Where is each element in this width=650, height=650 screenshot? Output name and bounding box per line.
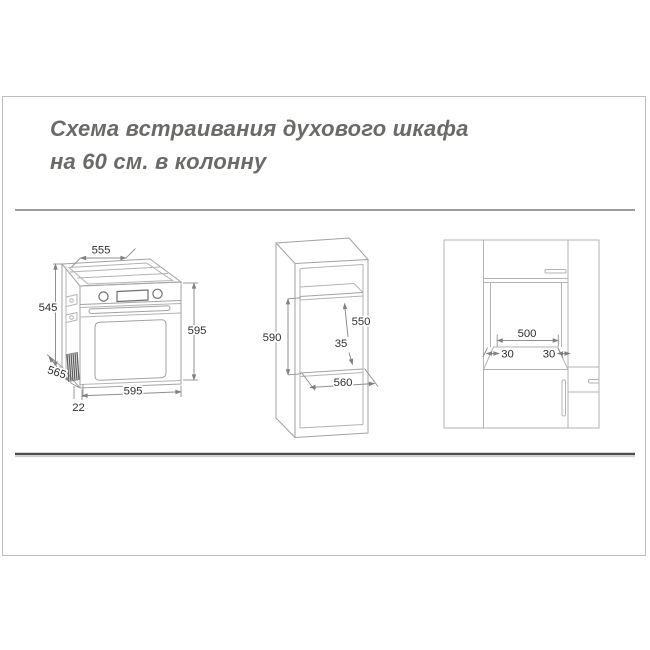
installation-diagram: 555 545 595 595 22 565 bbox=[0, 0, 650, 650]
oven-display bbox=[117, 290, 148, 302]
dim-oven-top-width: 555 bbox=[92, 245, 111, 257]
dim-oven-front-width: 595 bbox=[124, 386, 143, 398]
dim-margin-right: 30 bbox=[543, 349, 556, 361]
oven-top-face bbox=[62, 259, 181, 286]
facade-front-view: 500 30 30 bbox=[444, 240, 599, 428]
dim-niche-height: 590 bbox=[263, 332, 282, 344]
oven-isometric-view: 555 545 595 595 22 565 bbox=[39, 245, 207, 415]
dim-rear-gap: 35 bbox=[335, 338, 348, 350]
dim-oven-depth: 565 bbox=[46, 364, 68, 381]
lower-door-handle bbox=[562, 380, 566, 416]
column-shelf bbox=[300, 293, 363, 297]
dim-margin-left: 30 bbox=[501, 349, 514, 361]
drawer-handle bbox=[589, 380, 600, 384]
column-niche-bottom bbox=[300, 369, 363, 373]
oven-knob-right bbox=[153, 289, 162, 298]
page: Схема встраивания духового шкафа на 60 с… bbox=[0, 0, 650, 650]
dim-oven-rear-height: 545 bbox=[39, 302, 58, 314]
dim-opening-width: 500 bbox=[518, 328, 537, 340]
oven-side-bracket bbox=[66, 313, 77, 323]
oven-door-window bbox=[95, 320, 166, 381]
column-top-face bbox=[276, 238, 368, 264]
niche-base-trapezoid bbox=[484, 347, 569, 370]
dim-oven-front-offset: 22 bbox=[72, 402, 85, 414]
column-isometric-view: 590 550 35 560 bbox=[263, 238, 378, 438]
oven-vent-grille bbox=[67, 352, 79, 382]
dim-niche-depth: 550 bbox=[352, 316, 371, 328]
upper-door-handle bbox=[545, 270, 566, 274]
oven-knob-left bbox=[99, 292, 108, 301]
oven-side-bracket bbox=[66, 295, 77, 307]
dim-oven-front-height: 595 bbox=[188, 325, 207, 337]
dim-niche-width: 560 bbox=[334, 377, 353, 389]
